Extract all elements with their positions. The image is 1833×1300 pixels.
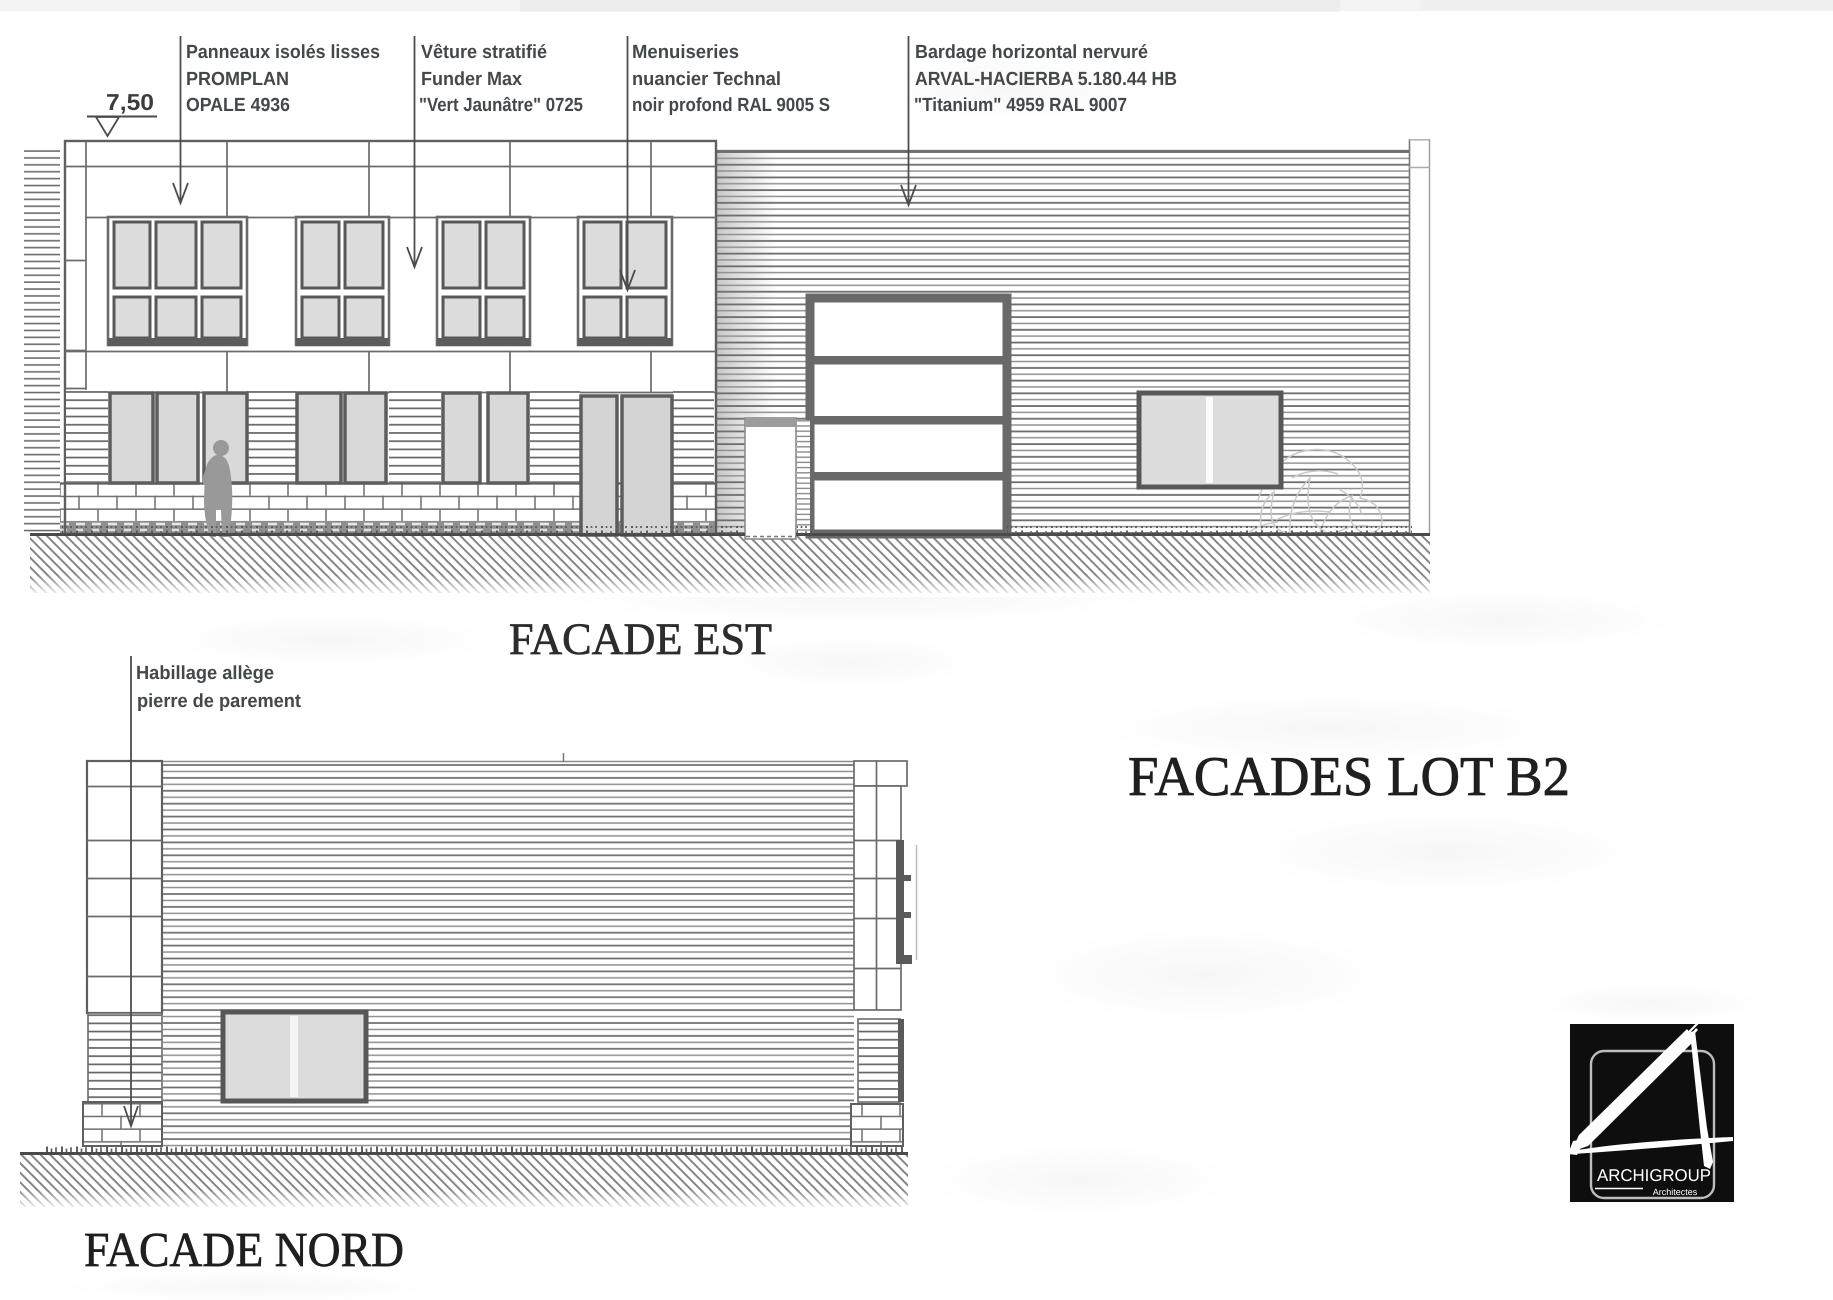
svg-text:7,50: 7,50 — [106, 89, 154, 115]
svg-text:Bardage horizontal nervuré: Bardage horizontal nervuré — [915, 42, 1148, 63]
svg-text:noir profond RAL 9005 S: noir profond RAL 9005 S — [632, 95, 830, 116]
svg-text:"Titanium" 4959 RAL 9007: "Titanium" 4959 RAL 9007 — [914, 95, 1127, 116]
svg-text:ARVAL-HACIERBA 5.180.44 HB: ARVAL-HACIERBA 5.180.44 HB — [915, 69, 1177, 90]
svg-text:Menuiseries: Menuiseries — [632, 42, 739, 63]
svg-text:FACADE EST: FACADE EST — [509, 614, 772, 664]
svg-text:nuancier Technal: nuancier Technal — [632, 69, 781, 90]
svg-text:Vêture stratifié: Vêture stratifié — [421, 42, 547, 63]
svg-text:Habillage allège: Habillage allège — [136, 663, 274, 684]
svg-text:PROMPLAN: PROMPLAN — [186, 69, 289, 90]
svg-text:Panneaux isolés lisses: Panneaux isolés lisses — [186, 42, 380, 63]
svg-text:OPALE 4936: OPALE 4936 — [186, 95, 290, 116]
svg-text:"Vert Jaunâtre" 0725: "Vert Jaunâtre" 0725 — [419, 95, 583, 116]
svg-text:FACADES LOT B2: FACADES LOT B2 — [1128, 746, 1570, 808]
svg-text:Funder Max: Funder Max — [421, 69, 522, 90]
svg-text:Architectes: Architectes — [1653, 1187, 1698, 1197]
svg-text:pierre de parement: pierre de parement — [137, 691, 302, 712]
svg-text:ARCHIGROUP: ARCHIGROUP — [1597, 1166, 1711, 1185]
svg-text:FACADE NORD: FACADE NORD — [84, 1222, 404, 1277]
